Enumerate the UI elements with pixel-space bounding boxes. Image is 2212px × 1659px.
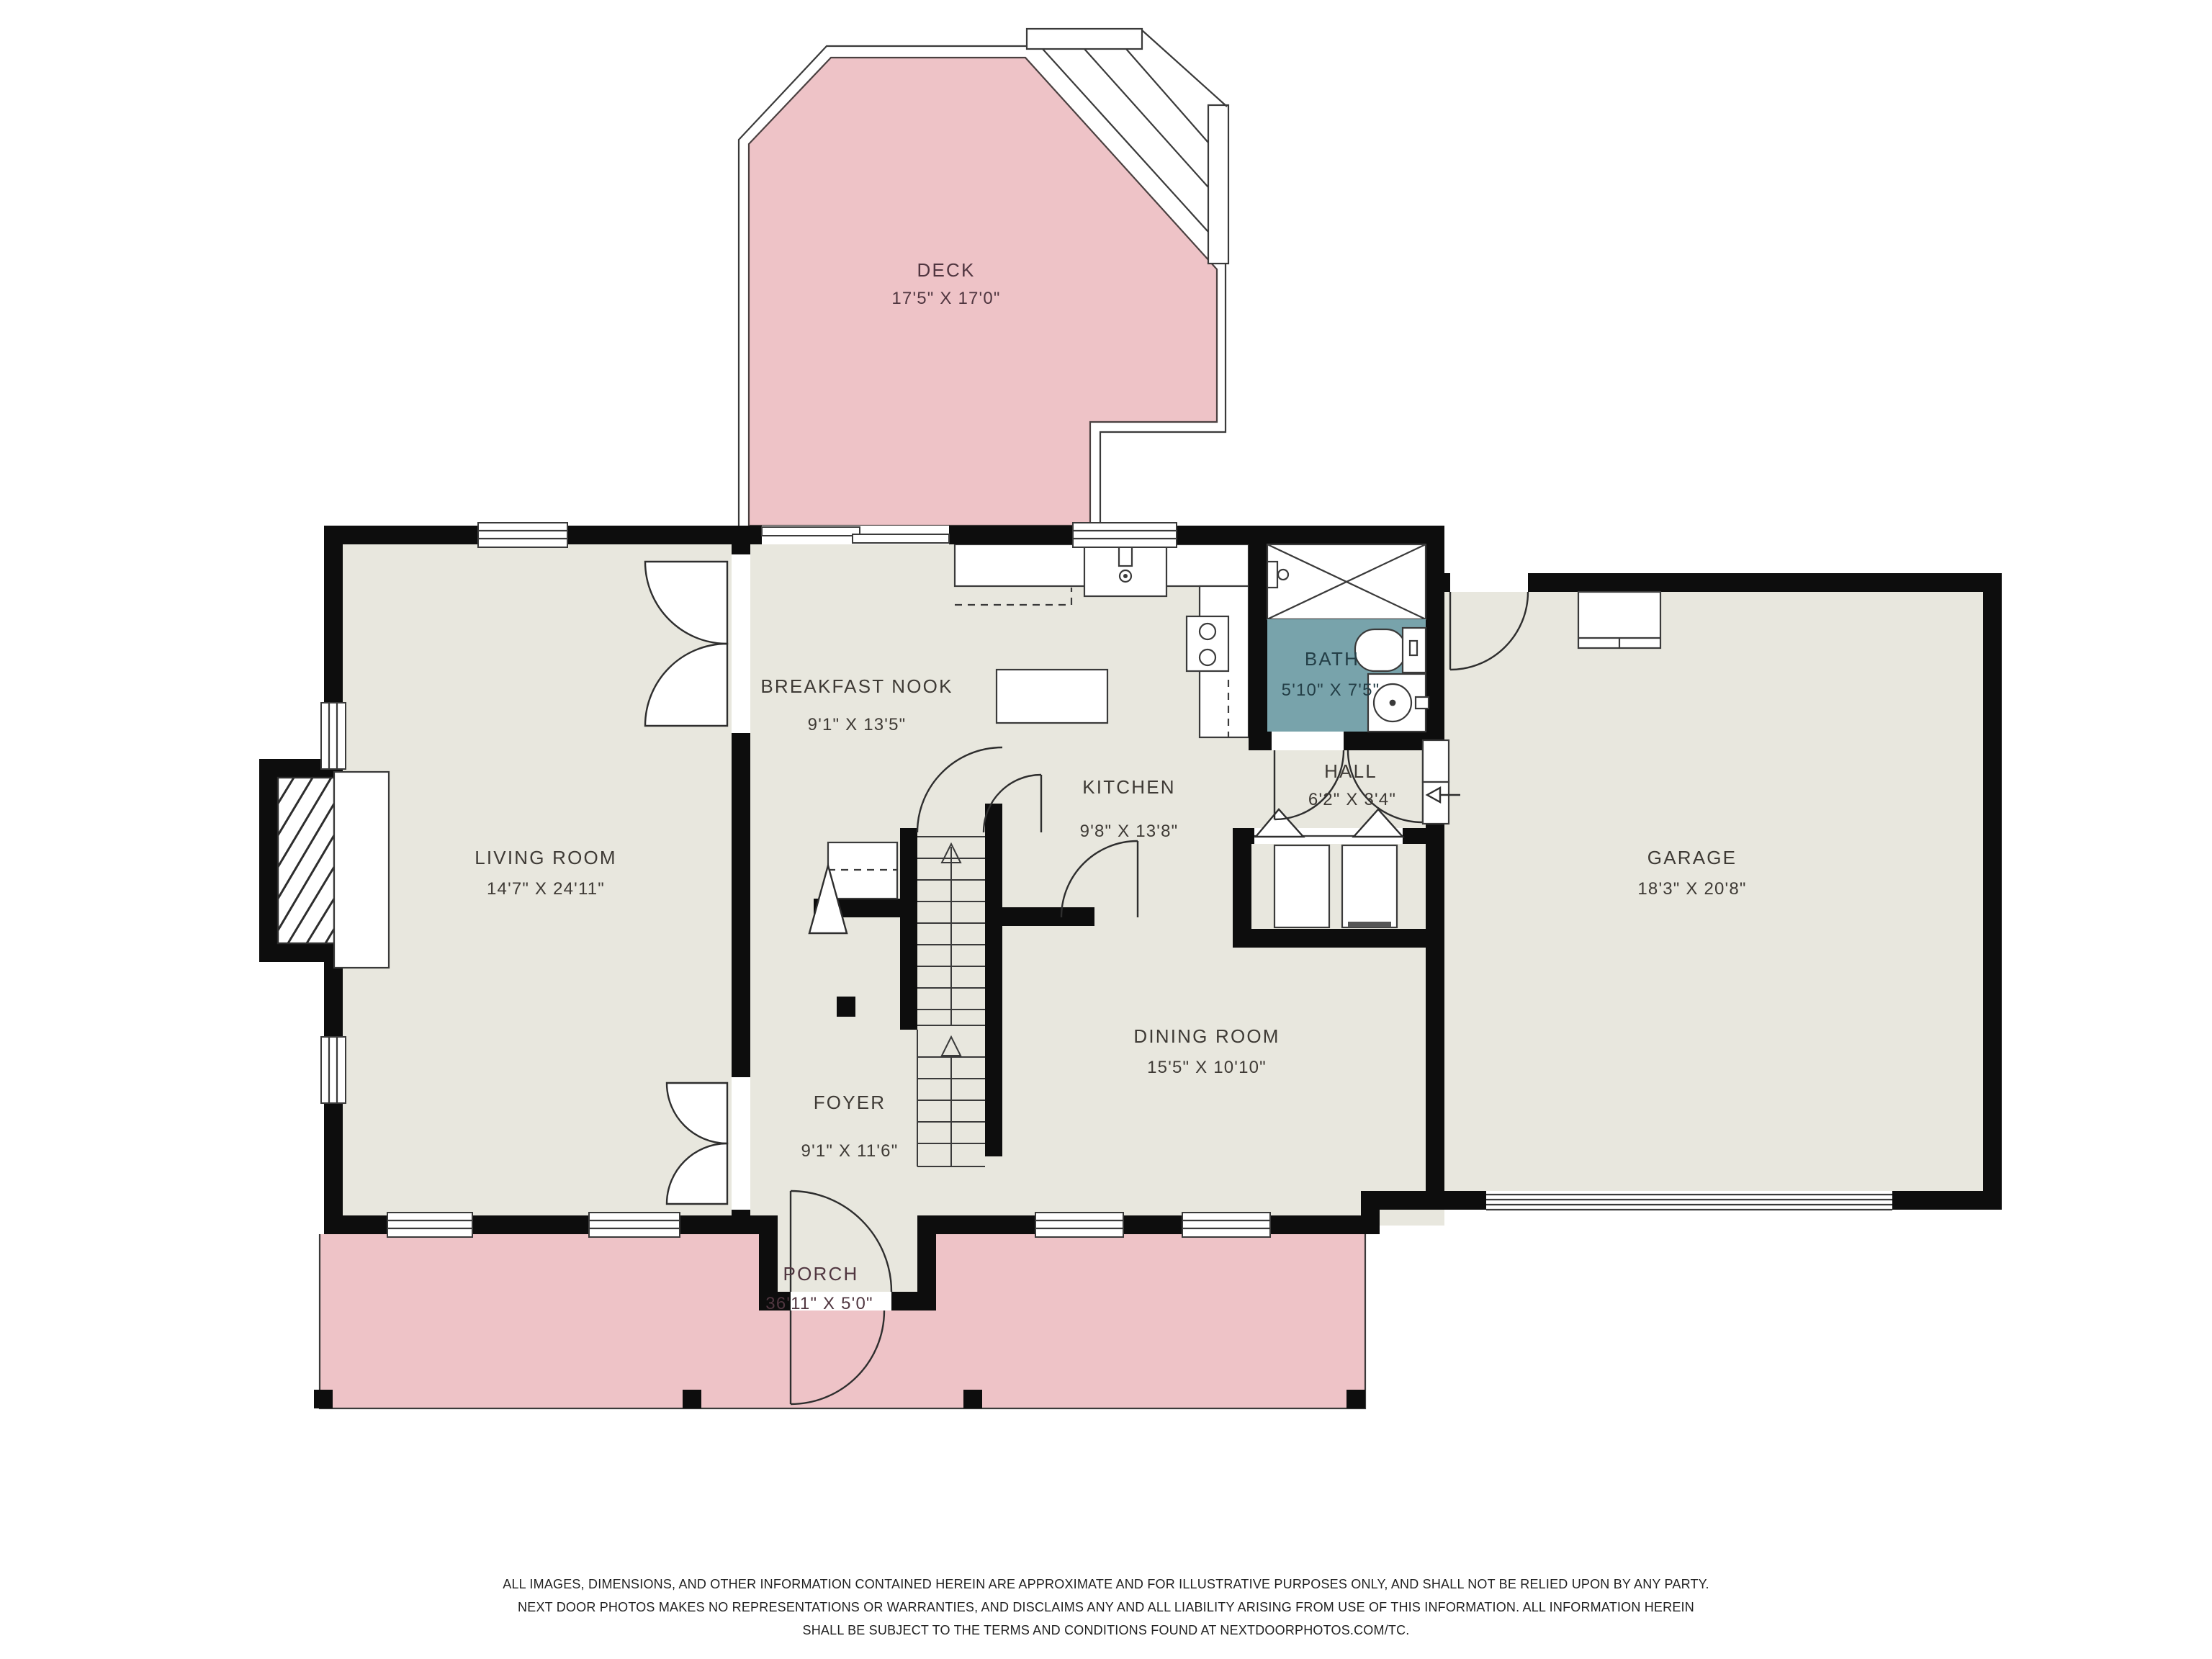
hearth	[334, 772, 389, 968]
deck-area	[739, 29, 1228, 529]
floorplan-svg: DECK 17'5" X 17'0" BREAKFAST NOOK 9'1" X…	[0, 0, 2212, 1659]
kitchen-island	[997, 670, 1107, 723]
shower-valve-icon	[1267, 562, 1277, 588]
room-dims-living-room: 14'7" X 24'11"	[487, 879, 605, 899]
sink-drain-dot	[1123, 574, 1128, 578]
room-label-deck: DECK	[917, 259, 975, 281]
garage-step	[1423, 740, 1449, 782]
toilet-bowl-icon	[1355, 629, 1406, 671]
room-label-porch: PORCH	[783, 1263, 859, 1285]
firebox	[278, 778, 334, 943]
room-label-foyer: FOYER	[814, 1092, 886, 1113]
garage-step	[1423, 782, 1449, 824]
room-label-hall: HALL	[1324, 760, 1377, 782]
room-dims-bath: 5'10" X 7'5"	[1282, 680, 1380, 700]
floors	[333, 534, 1990, 1302]
garage-door	[1486, 1191, 1892, 1210]
basin-dot	[1390, 700, 1396, 706]
porch-post	[1346, 1390, 1365, 1408]
room-dims-hall: 6'2" X 3'4"	[1308, 790, 1396, 809]
porch-post	[963, 1390, 982, 1408]
room-label-garage: GARAGE	[1647, 847, 1737, 868]
room-dims-porch: 36'11" X 5'0"	[765, 1294, 873, 1313]
room-label-living-room: LIVING ROOM	[475, 847, 617, 868]
room-dims-garage: 18'3" X 20'8"	[1637, 879, 1746, 899]
room-label-bath: BATH	[1305, 648, 1359, 670]
fireplace	[259, 759, 389, 968]
toilet-knob-icon	[1410, 641, 1417, 655]
disclaimer-line-1: ALL IMAGES, DIMENSIONS, AND OTHER INFORM…	[503, 1577, 1709, 1591]
room-label-breakfast-nook: BREAKFAST NOOK	[760, 675, 953, 697]
sliding-door	[762, 526, 949, 544]
porch-post	[683, 1390, 701, 1408]
porch-post	[314, 1390, 333, 1408]
disclaimer: ALL IMAGES, DIMENSIONS, AND OTHER INFORM…	[503, 1577, 1709, 1637]
room-dims-kitchen: 9'8" X 13'8"	[1080, 822, 1179, 841]
bath-fixtures	[1267, 544, 1429, 732]
floorplan-page: DECK 17'5" X 17'0" BREAKFAST NOOK 9'1" X…	[0, 0, 2212, 1659]
room-label-kitchen: KITCHEN	[1082, 776, 1176, 798]
basin-faucet-icon	[1416, 697, 1429, 709]
disclaimer-line-2: NEXT DOOR PHOTOS MAKES NO REPRESENTATION…	[518, 1600, 1694, 1614]
room-dims-deck: 17'5" X 17'0"	[891, 289, 1000, 308]
disclaimer-line-3: SHALL BE SUBJECT TO THE TERMS AND CONDIT…	[803, 1623, 1410, 1637]
room-dims-dining-room: 15'5" X 10'10"	[1147, 1058, 1267, 1077]
stove-icon	[1187, 616, 1228, 671]
room-label-dining-room: DINING ROOM	[1133, 1025, 1280, 1047]
room-dims-foyer: 9'1" X 11'6"	[801, 1141, 899, 1161]
room-dims-breakfast-nook: 9'1" X 13'5"	[808, 715, 907, 734]
